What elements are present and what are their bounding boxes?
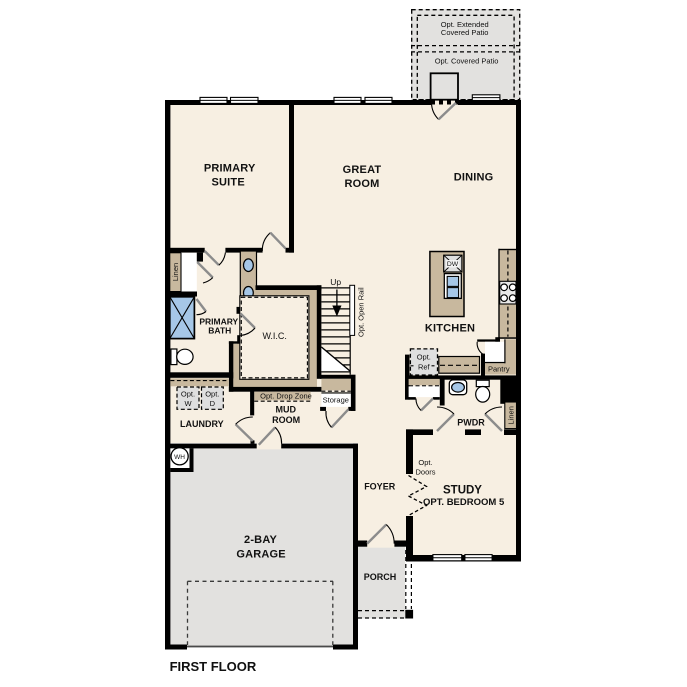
svg-text:FOYER: FOYER [364, 482, 396, 492]
svg-text:MUD: MUD [276, 405, 297, 415]
svg-text:Covered Patio: Covered Patio [441, 28, 489, 37]
svg-text:Opt. Open Rail: Opt. Open Rail [357, 287, 366, 337]
svg-text:SUITE: SUITE [211, 177, 244, 189]
svg-text:Opt. Covered Patio: Opt. Covered Patio [435, 56, 499, 65]
svg-text:Doors: Doors [415, 468, 435, 477]
svg-text:Opt.: Opt. [417, 353, 431, 362]
svg-text:PRIMARY: PRIMARY [204, 163, 256, 175]
svg-text:Pantry: Pantry [488, 365, 510, 374]
svg-text:W.I.C.: W.I.C. [262, 331, 287, 341]
svg-text:DW: DW [447, 261, 459, 268]
svg-text:KITCHEN: KITCHEN [425, 322, 475, 334]
svg-text:BATH: BATH [208, 326, 231, 336]
svg-text:GREAT: GREAT [343, 164, 382, 176]
svg-text:DINING: DINING [454, 172, 494, 184]
svg-text:Opt.: Opt. [418, 458, 432, 467]
svg-text:Ref: Ref [418, 363, 431, 372]
svg-text:GARAGE: GARAGE [236, 548, 285, 560]
svg-text:2-BAY: 2-BAY [244, 534, 277, 546]
svg-text:Storage: Storage [323, 396, 349, 405]
svg-text:Linen: Linen [507, 406, 516, 424]
svg-text:Opt.: Opt. [181, 390, 195, 399]
svg-text:PWDR: PWDR [457, 417, 485, 427]
svg-text:PORCH: PORCH [364, 572, 397, 582]
svg-text:FIRST FLOOR: FIRST FLOOR [170, 659, 257, 674]
svg-text:ROOM: ROOM [272, 415, 300, 425]
svg-text:W: W [184, 399, 192, 408]
svg-text:Opt.: Opt. [205, 390, 219, 399]
svg-text:LAUNDRY: LAUNDRY [180, 419, 224, 429]
svg-text:ROOM: ROOM [344, 178, 379, 190]
svg-text:D: D [210, 399, 216, 408]
svg-text:Opt. Drop Zone: Opt. Drop Zone [260, 391, 312, 400]
svg-text:Up: Up [330, 277, 341, 287]
svg-text:WH: WH [174, 454, 185, 461]
svg-text:STUDY: STUDY [443, 484, 482, 496]
svg-text:Linen: Linen [171, 263, 180, 281]
svg-text:OPT. BEDROOM 5: OPT. BEDROOM 5 [423, 497, 505, 508]
